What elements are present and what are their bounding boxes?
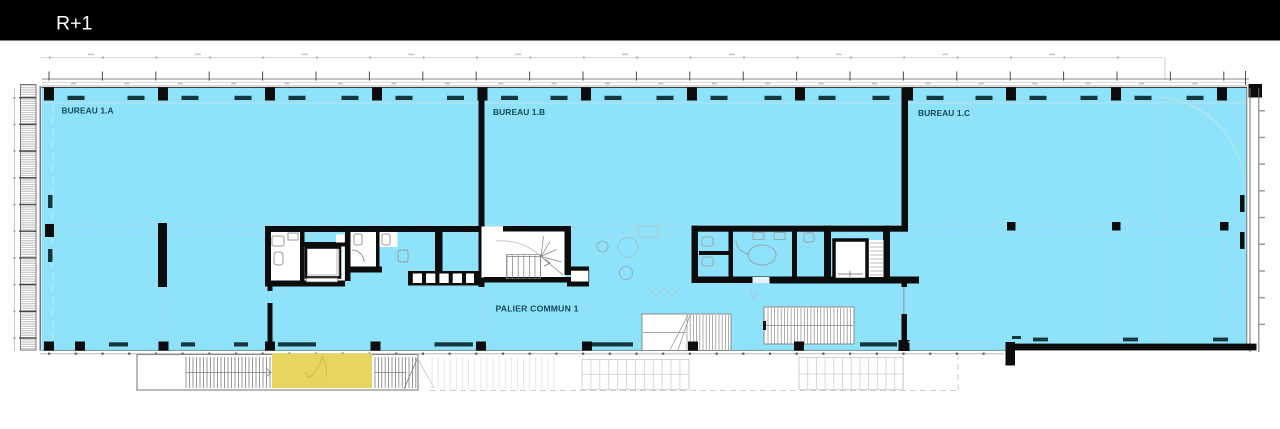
svg-text:BUREAU 1.A: BUREAU 1.A: [62, 106, 114, 116]
svg-text:BUREAU 1.C: BUREAU 1.C: [918, 108, 970, 118]
svg-text:R+1: R+1: [56, 13, 92, 35]
svg-text:BUREAU 1.B: BUREAU 1.B: [493, 107, 545, 117]
svg-text:PALIER COMMUN 1: PALIER COMMUN 1: [496, 304, 579, 314]
